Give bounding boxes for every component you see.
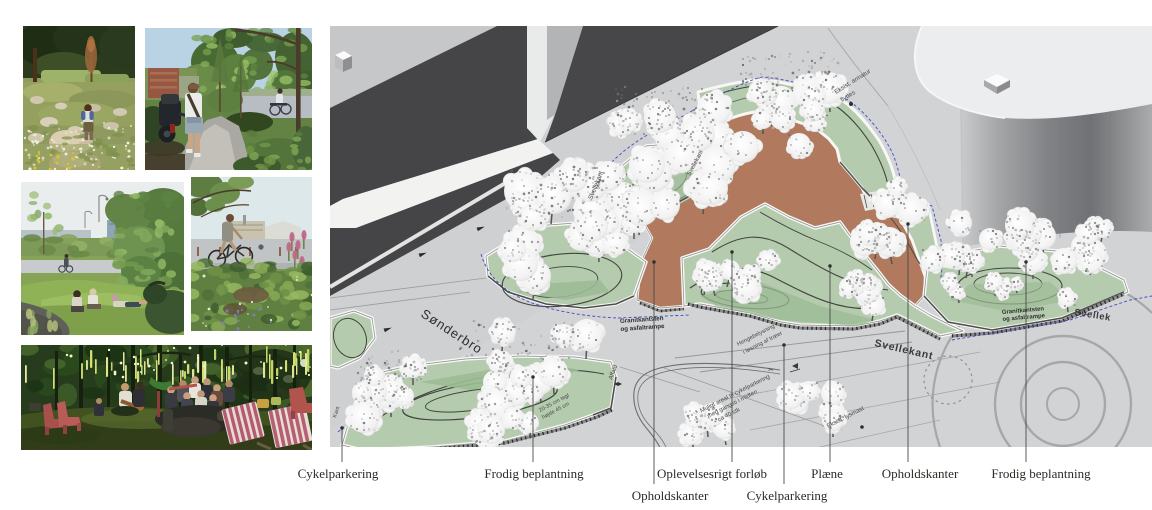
svg-text:✂: ✂: [768, 367, 774, 374]
